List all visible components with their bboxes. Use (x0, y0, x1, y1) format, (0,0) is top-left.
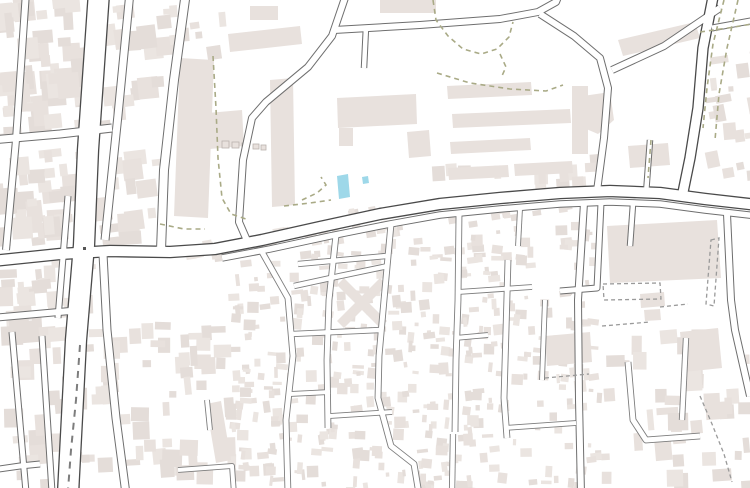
building (482, 434, 493, 438)
building (195, 31, 202, 38)
building (388, 311, 399, 315)
building (238, 377, 245, 384)
building (206, 45, 222, 61)
building (392, 349, 403, 361)
building (366, 396, 374, 408)
building (31, 279, 51, 291)
building (528, 479, 537, 485)
building (306, 370, 317, 382)
building (119, 231, 142, 246)
building (560, 245, 568, 250)
building (471, 235, 476, 241)
building (632, 336, 642, 355)
building (466, 350, 472, 357)
building (738, 402, 750, 414)
building (249, 283, 260, 291)
building (400, 302, 412, 313)
building (468, 273, 472, 276)
building (156, 14, 172, 29)
building (482, 297, 488, 303)
building (591, 243, 596, 250)
building (430, 344, 438, 349)
building (247, 302, 259, 313)
building (233, 306, 243, 309)
building (432, 166, 446, 182)
road-surface (630, 204, 633, 246)
building (344, 342, 351, 351)
building (413, 409, 420, 413)
building (356, 372, 361, 376)
building (44, 113, 63, 129)
building (180, 439, 199, 456)
building-below-big-2 (644, 309, 661, 321)
building-hut (253, 144, 259, 149)
building (434, 273, 445, 284)
building (209, 326, 226, 333)
building (425, 430, 433, 438)
building (422, 282, 432, 292)
building (491, 341, 498, 347)
building (271, 421, 280, 426)
map-viewport[interactable] (0, 0, 750, 488)
building (265, 466, 275, 475)
building (472, 353, 482, 358)
building (264, 386, 273, 390)
building (487, 293, 494, 298)
building (350, 384, 358, 393)
building (89, 329, 103, 337)
building (122, 158, 144, 181)
building (190, 22, 200, 30)
building (521, 238, 530, 248)
building (736, 63, 750, 79)
building (419, 299, 430, 310)
building (665, 395, 682, 405)
building (257, 452, 269, 460)
building (338, 263, 348, 269)
building (496, 230, 500, 234)
building (367, 383, 374, 390)
building (120, 414, 130, 425)
building (355, 265, 360, 269)
building (196, 338, 210, 351)
building (509, 317, 514, 320)
building (258, 373, 265, 380)
building (741, 480, 750, 488)
building (125, 178, 137, 195)
building-nw-small (250, 6, 278, 20)
building (136, 24, 158, 49)
building (456, 481, 467, 488)
building (672, 454, 684, 467)
building (214, 344, 232, 357)
building (475, 254, 482, 263)
building (489, 464, 500, 472)
building (421, 458, 432, 468)
city-map-canvas[interactable] (0, 0, 750, 488)
building (267, 448, 277, 455)
road-surface (452, 434, 453, 488)
building (36, 10, 48, 20)
building (483, 271, 490, 276)
road-surface (518, 209, 520, 246)
building (446, 373, 452, 376)
building (545, 466, 552, 478)
building (59, 163, 68, 176)
building (427, 404, 438, 410)
building (218, 12, 226, 27)
road-surface (290, 392, 330, 394)
building (667, 469, 684, 486)
building (352, 365, 364, 369)
building (244, 382, 254, 387)
building (439, 326, 450, 335)
building (269, 390, 275, 398)
building (388, 421, 392, 425)
building (3, 105, 14, 117)
building-below-big-1 (640, 292, 665, 308)
building (421, 311, 427, 317)
building-campus-wing (339, 128, 353, 146)
building (433, 314, 440, 324)
building (603, 388, 615, 402)
building (434, 475, 443, 480)
junction-dot (83, 247, 86, 250)
building (560, 374, 569, 383)
building (541, 481, 552, 485)
building (403, 362, 407, 368)
building (516, 255, 527, 265)
building (413, 238, 422, 245)
building (393, 429, 404, 441)
building (332, 341, 338, 351)
building (1, 279, 15, 288)
building (429, 255, 437, 260)
building (44, 150, 53, 163)
building (602, 472, 612, 484)
building (463, 433, 473, 445)
building (144, 440, 156, 452)
building (443, 399, 449, 410)
building (238, 465, 249, 470)
building (228, 293, 239, 301)
building (150, 340, 165, 347)
building (525, 352, 531, 357)
building (179, 352, 191, 366)
building (525, 262, 536, 268)
building (375, 451, 383, 458)
building (240, 398, 252, 404)
building-north-slab (380, 0, 436, 13)
building (296, 348, 304, 357)
building (28, 169, 46, 184)
building (480, 453, 488, 463)
building (135, 178, 157, 198)
building (555, 225, 567, 235)
building (297, 434, 302, 442)
building (160, 459, 175, 478)
building (581, 319, 589, 325)
building-hut (222, 141, 229, 148)
building (556, 374, 560, 383)
building (273, 382, 282, 385)
building (226, 404, 236, 420)
building (141, 323, 153, 339)
building (151, 76, 164, 87)
building (597, 393, 603, 403)
building (272, 477, 284, 482)
building (355, 431, 366, 440)
building (98, 457, 114, 472)
building (270, 296, 280, 305)
building (702, 452, 716, 466)
building (300, 250, 312, 259)
building (471, 392, 482, 400)
building (58, 37, 71, 47)
building (296, 415, 308, 424)
building (297, 462, 303, 474)
building (421, 474, 426, 485)
building (510, 303, 515, 311)
building (196, 381, 206, 390)
building (40, 55, 50, 67)
building (408, 341, 412, 353)
building-big-building (607, 220, 721, 283)
building (307, 466, 319, 478)
building (554, 476, 559, 483)
building (488, 398, 492, 403)
building (436, 337, 445, 342)
building (444, 246, 455, 255)
building (487, 403, 493, 410)
building (690, 420, 703, 434)
building (290, 273, 299, 282)
building (588, 443, 592, 447)
building (735, 451, 742, 460)
building (245, 333, 252, 340)
building (606, 355, 625, 367)
building (297, 308, 303, 318)
building (112, 6, 121, 13)
building (352, 447, 364, 459)
building (723, 122, 737, 140)
building (230, 347, 240, 352)
building (231, 313, 241, 323)
building (27, 198, 38, 207)
building (163, 8, 173, 14)
building (728, 86, 733, 92)
building (216, 358, 226, 370)
building (0, 269, 17, 278)
building (588, 232, 593, 235)
building (489, 445, 500, 452)
building (276, 352, 286, 363)
building (44, 168, 55, 179)
building (48, 327, 67, 342)
building (321, 482, 326, 487)
building (353, 476, 357, 487)
building (311, 448, 322, 455)
building-hut (261, 145, 266, 150)
building (436, 445, 448, 455)
building (136, 446, 144, 461)
building (353, 457, 361, 468)
building (386, 472, 390, 476)
building (320, 431, 329, 439)
building (169, 391, 176, 398)
building (289, 422, 297, 432)
building (49, 191, 65, 203)
building (467, 427, 472, 435)
building (549, 412, 557, 420)
building (537, 400, 544, 407)
building (411, 259, 417, 265)
building (410, 291, 415, 301)
building (420, 247, 430, 252)
building (274, 367, 278, 378)
building (464, 425, 468, 431)
building (306, 395, 316, 405)
building (310, 286, 319, 295)
building (462, 406, 471, 415)
building (408, 384, 417, 393)
building (528, 326, 535, 335)
building (16, 291, 35, 304)
building-br-big-2 (545, 332, 592, 366)
building (190, 346, 198, 366)
building (337, 291, 346, 300)
building (237, 430, 249, 441)
building (52, 347, 61, 364)
building (710, 78, 717, 89)
building (333, 372, 341, 380)
building (722, 167, 735, 179)
building-yard-bldg (407, 130, 431, 158)
building-hut (232, 142, 239, 148)
building (34, 414, 45, 436)
building (188, 333, 202, 340)
building (17, 320, 40, 344)
building (332, 424, 338, 429)
water-pool-small (362, 176, 369, 184)
building (468, 220, 478, 227)
building (147, 208, 156, 219)
building (180, 334, 189, 348)
building (56, 72, 80, 99)
building (131, 407, 149, 421)
building (392, 295, 402, 308)
building (736, 162, 745, 171)
building (523, 374, 527, 380)
building (497, 472, 507, 483)
building (438, 362, 449, 375)
building (470, 421, 479, 427)
building (162, 402, 169, 416)
building (527, 247, 533, 258)
building (601, 453, 610, 460)
building (559, 384, 566, 390)
road-surface (364, 27, 366, 68)
building (249, 466, 259, 477)
building (415, 323, 419, 327)
building (524, 296, 528, 300)
building (243, 319, 255, 330)
building (232, 385, 240, 392)
building (394, 416, 406, 428)
building (180, 367, 193, 379)
building (63, 10, 74, 30)
building (240, 259, 252, 267)
building (422, 415, 427, 423)
building (491, 299, 496, 310)
building (0, 287, 13, 307)
building (398, 285, 404, 292)
building (488, 275, 501, 283)
building (43, 216, 55, 235)
building (81, 455, 89, 463)
building (129, 328, 141, 344)
building (565, 443, 574, 449)
building (633, 352, 646, 370)
building (408, 247, 419, 256)
building (280, 317, 285, 322)
building (392, 321, 403, 331)
building (568, 478, 575, 488)
building (254, 359, 260, 367)
building (155, 322, 171, 330)
building (132, 421, 149, 439)
building (513, 439, 516, 445)
building (337, 335, 342, 338)
building (351, 251, 361, 256)
building (162, 438, 172, 447)
building (491, 256, 503, 261)
building (142, 360, 151, 367)
building (511, 374, 523, 385)
building (520, 448, 532, 457)
building (469, 307, 479, 313)
building (378, 463, 384, 471)
building (254, 277, 258, 281)
building-campus-v-slab (174, 58, 214, 218)
building (428, 480, 434, 484)
building (240, 387, 251, 397)
building (337, 300, 345, 311)
water-pool (337, 174, 350, 199)
building-campus-h-slab (337, 94, 417, 128)
building (660, 329, 678, 344)
building (476, 405, 480, 410)
building (589, 389, 594, 393)
